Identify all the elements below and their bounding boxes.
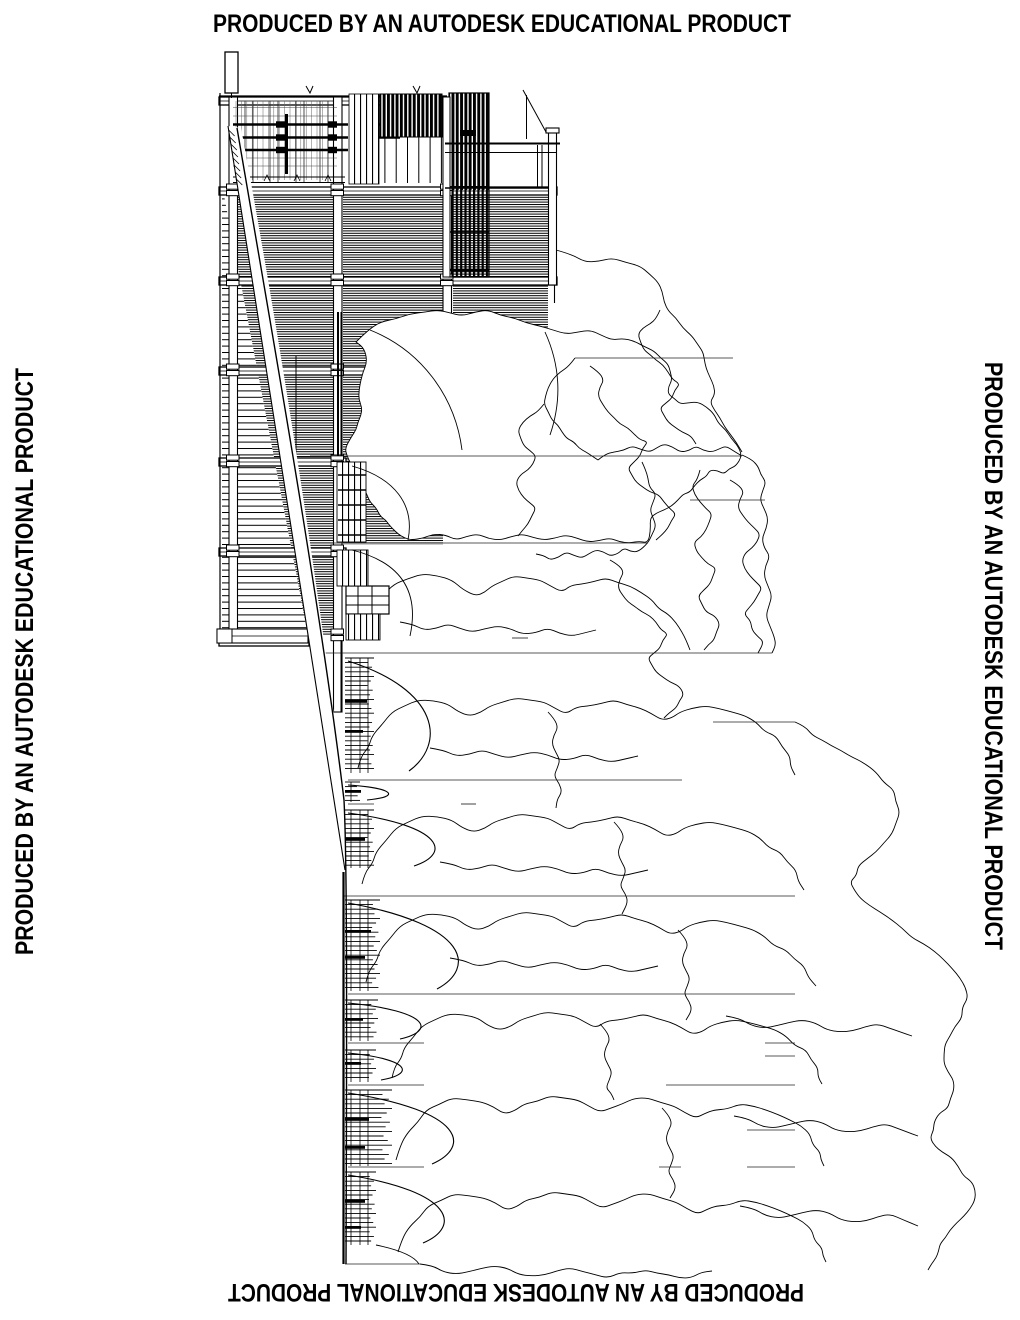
svg-text:PRODUCED BY AN AUTODESK EDUCAT: PRODUCED BY AN AUTODESK EDUCATIONAL PROD… [228, 1278, 804, 1306]
svg-text:PRODUCED BY AN AUTODESK EDUCAT: PRODUCED BY AN AUTODESK EDUCATIONAL PROD… [213, 10, 791, 38]
svg-text:PRODUCED BY AN AUTODESK EDUCAT: PRODUCED BY AN AUTODESK EDUCATIONAL PROD… [979, 362, 1007, 950]
svg-text:PRODUCED BY AN AUTODESK EDUCAT: PRODUCED BY AN AUTODESK EDUCATIONAL PROD… [11, 368, 39, 955]
